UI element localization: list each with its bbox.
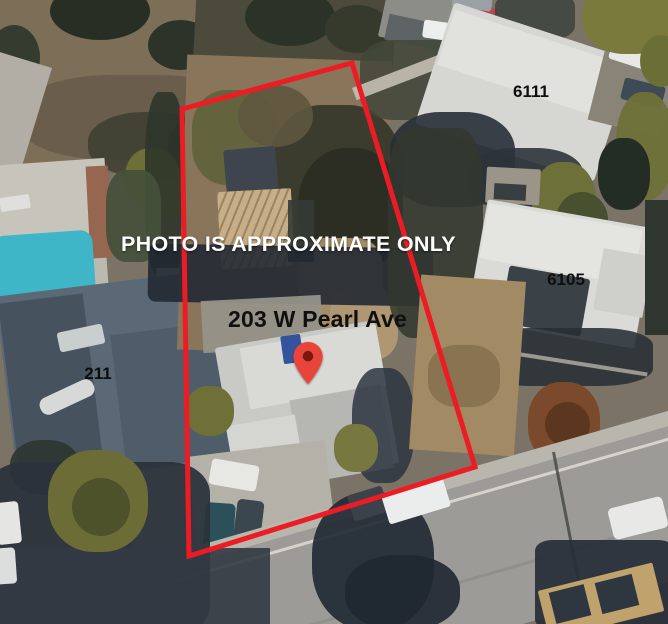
map-pin-icon <box>293 342 323 384</box>
map-pin-body <box>293 342 322 384</box>
label-6105: 6105 <box>543 270 589 290</box>
property-address-label: 203 W Pearl Ave <box>228 306 407 333</box>
aerial-photo: 6111 6105 211 203 W Pearl Ave PHOTO IS A… <box>0 0 668 624</box>
watermark-text: PHOTO IS APPROXIMATE ONLY <box>121 232 441 257</box>
label-6111: 6111 <box>508 82 554 102</box>
label-211: 211 <box>80 364 116 384</box>
map-pin-dot <box>303 351 314 362</box>
